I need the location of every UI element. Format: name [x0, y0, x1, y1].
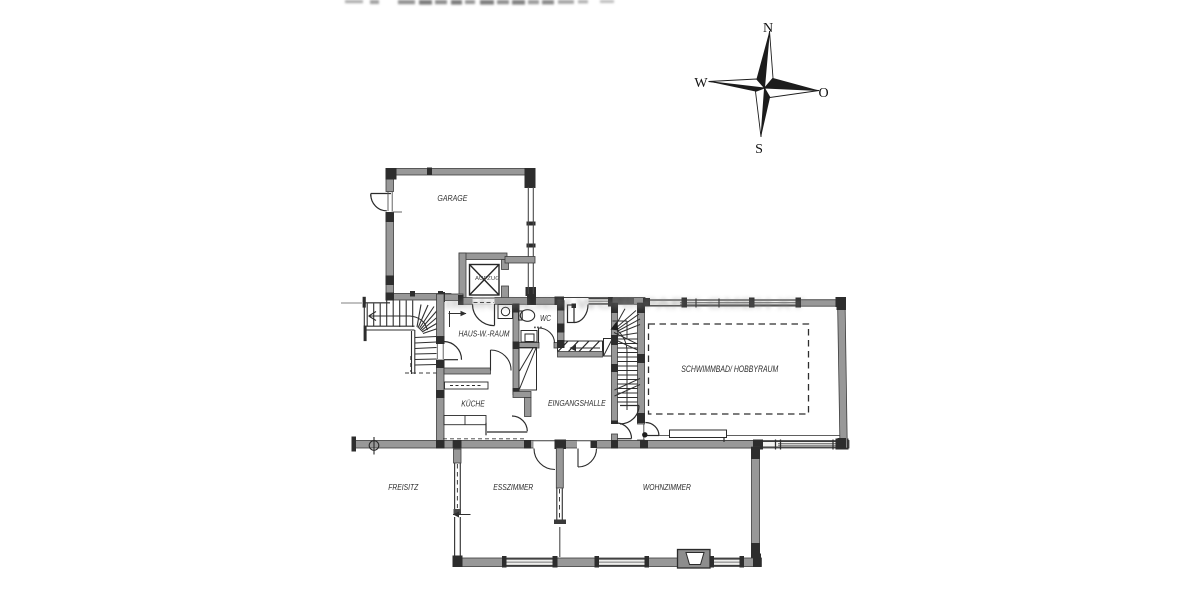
svg-text:SCHWIMMBAD/ HOBBYRAUM: SCHWIMMBAD/ HOBBYRAUM	[681, 364, 778, 374]
svg-text:IMMOBILIEN WOHNPARK GMBH XY: IMMOBILIEN WOHNPARK GMBH XY	[445, 296, 805, 313]
svg-text:ESSZIMMER: ESSZIMMER	[493, 482, 533, 492]
svg-text:KÜCHE: KÜCHE	[461, 399, 485, 409]
svg-text:FREISITZ: FREISITZ	[388, 482, 419, 492]
svg-text:HAUS-W.-RAUM: HAUS-W.-RAUM	[459, 328, 510, 338]
svg-text:GARAGE: GARAGE	[437, 193, 467, 203]
svg-text:EINGANGSHALLE: EINGANGSHALLE	[548, 398, 606, 408]
svg-text:WOHNZIMMER: WOHNZIMMER	[643, 482, 691, 492]
svg-text:WC: WC	[540, 313, 552, 323]
svg-text:S: S	[755, 142, 763, 157]
svg-text:AUFZUG: AUFZUG	[475, 276, 501, 282]
svg-text:O: O	[818, 86, 828, 101]
svg-text:N: N	[763, 21, 773, 36]
svg-text:W: W	[694, 76, 708, 91]
